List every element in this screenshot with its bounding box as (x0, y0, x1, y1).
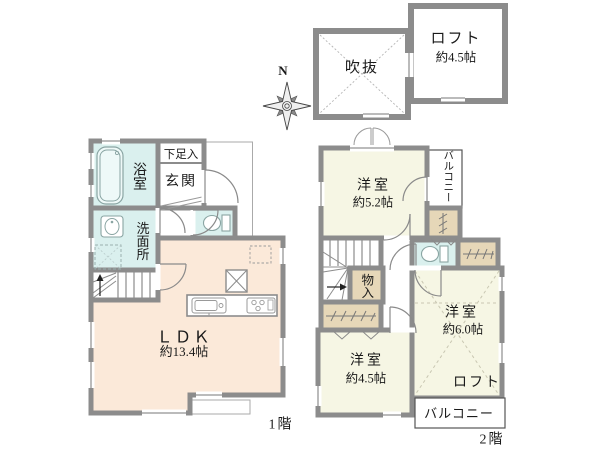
compass-north-label: N (278, 64, 287, 78)
kitchen-counter-icon (187, 295, 277, 316)
entrance-label: 玄関 (165, 176, 197, 191)
room-4-5-label: 洋室 (350, 355, 384, 370)
shoe-closet-label: 下足入 (164, 149, 199, 161)
floor-plan-image: 吹抜 ロフト 約4.5帖 N 浴室 下足入 玄関 洗面所 ＬＤＫ 約13.4帖 … (0, 0, 600, 450)
terrace-outline (190, 400, 250, 414)
refrigerator-space-icon (226, 270, 247, 292)
void-label: 吹抜 (345, 61, 379, 77)
loft-room-size: 約4.5帖 (436, 51, 477, 64)
balcony-bottom-label: バルコニー (424, 407, 494, 421)
toilet-2f-icon (422, 246, 449, 262)
bathtub-icon (97, 147, 123, 204)
storage-label: 物入 (360, 274, 373, 299)
bath-label: 浴室 (131, 162, 145, 190)
room-5-2-label: 洋室 (357, 180, 391, 195)
floor2-label: 2階 (480, 434, 505, 449)
loft-area-label: ロフト (453, 377, 501, 392)
room-4-5-size: 約4.5帖 (346, 372, 387, 385)
compass-rose-icon (263, 82, 311, 130)
washroom-label: 洗面所 (136, 222, 149, 261)
floorplan-drawing (0, 0, 600, 450)
ldk-size: 約13.4帖 (160, 345, 209, 359)
room-5-2-size: 約5.2帖 (353, 196, 394, 209)
floor1-label: 1階 (269, 419, 294, 434)
washbasin-icon (101, 216, 123, 237)
room-6-0-label: 洋室 (445, 307, 479, 322)
balcony-top-label: バルコニー (442, 150, 453, 203)
loft-room-label: ロフト (430, 32, 481, 48)
ldk-label: ＬＤＫ (156, 328, 212, 345)
room-6-0-size: 約6.0帖 (443, 323, 484, 336)
